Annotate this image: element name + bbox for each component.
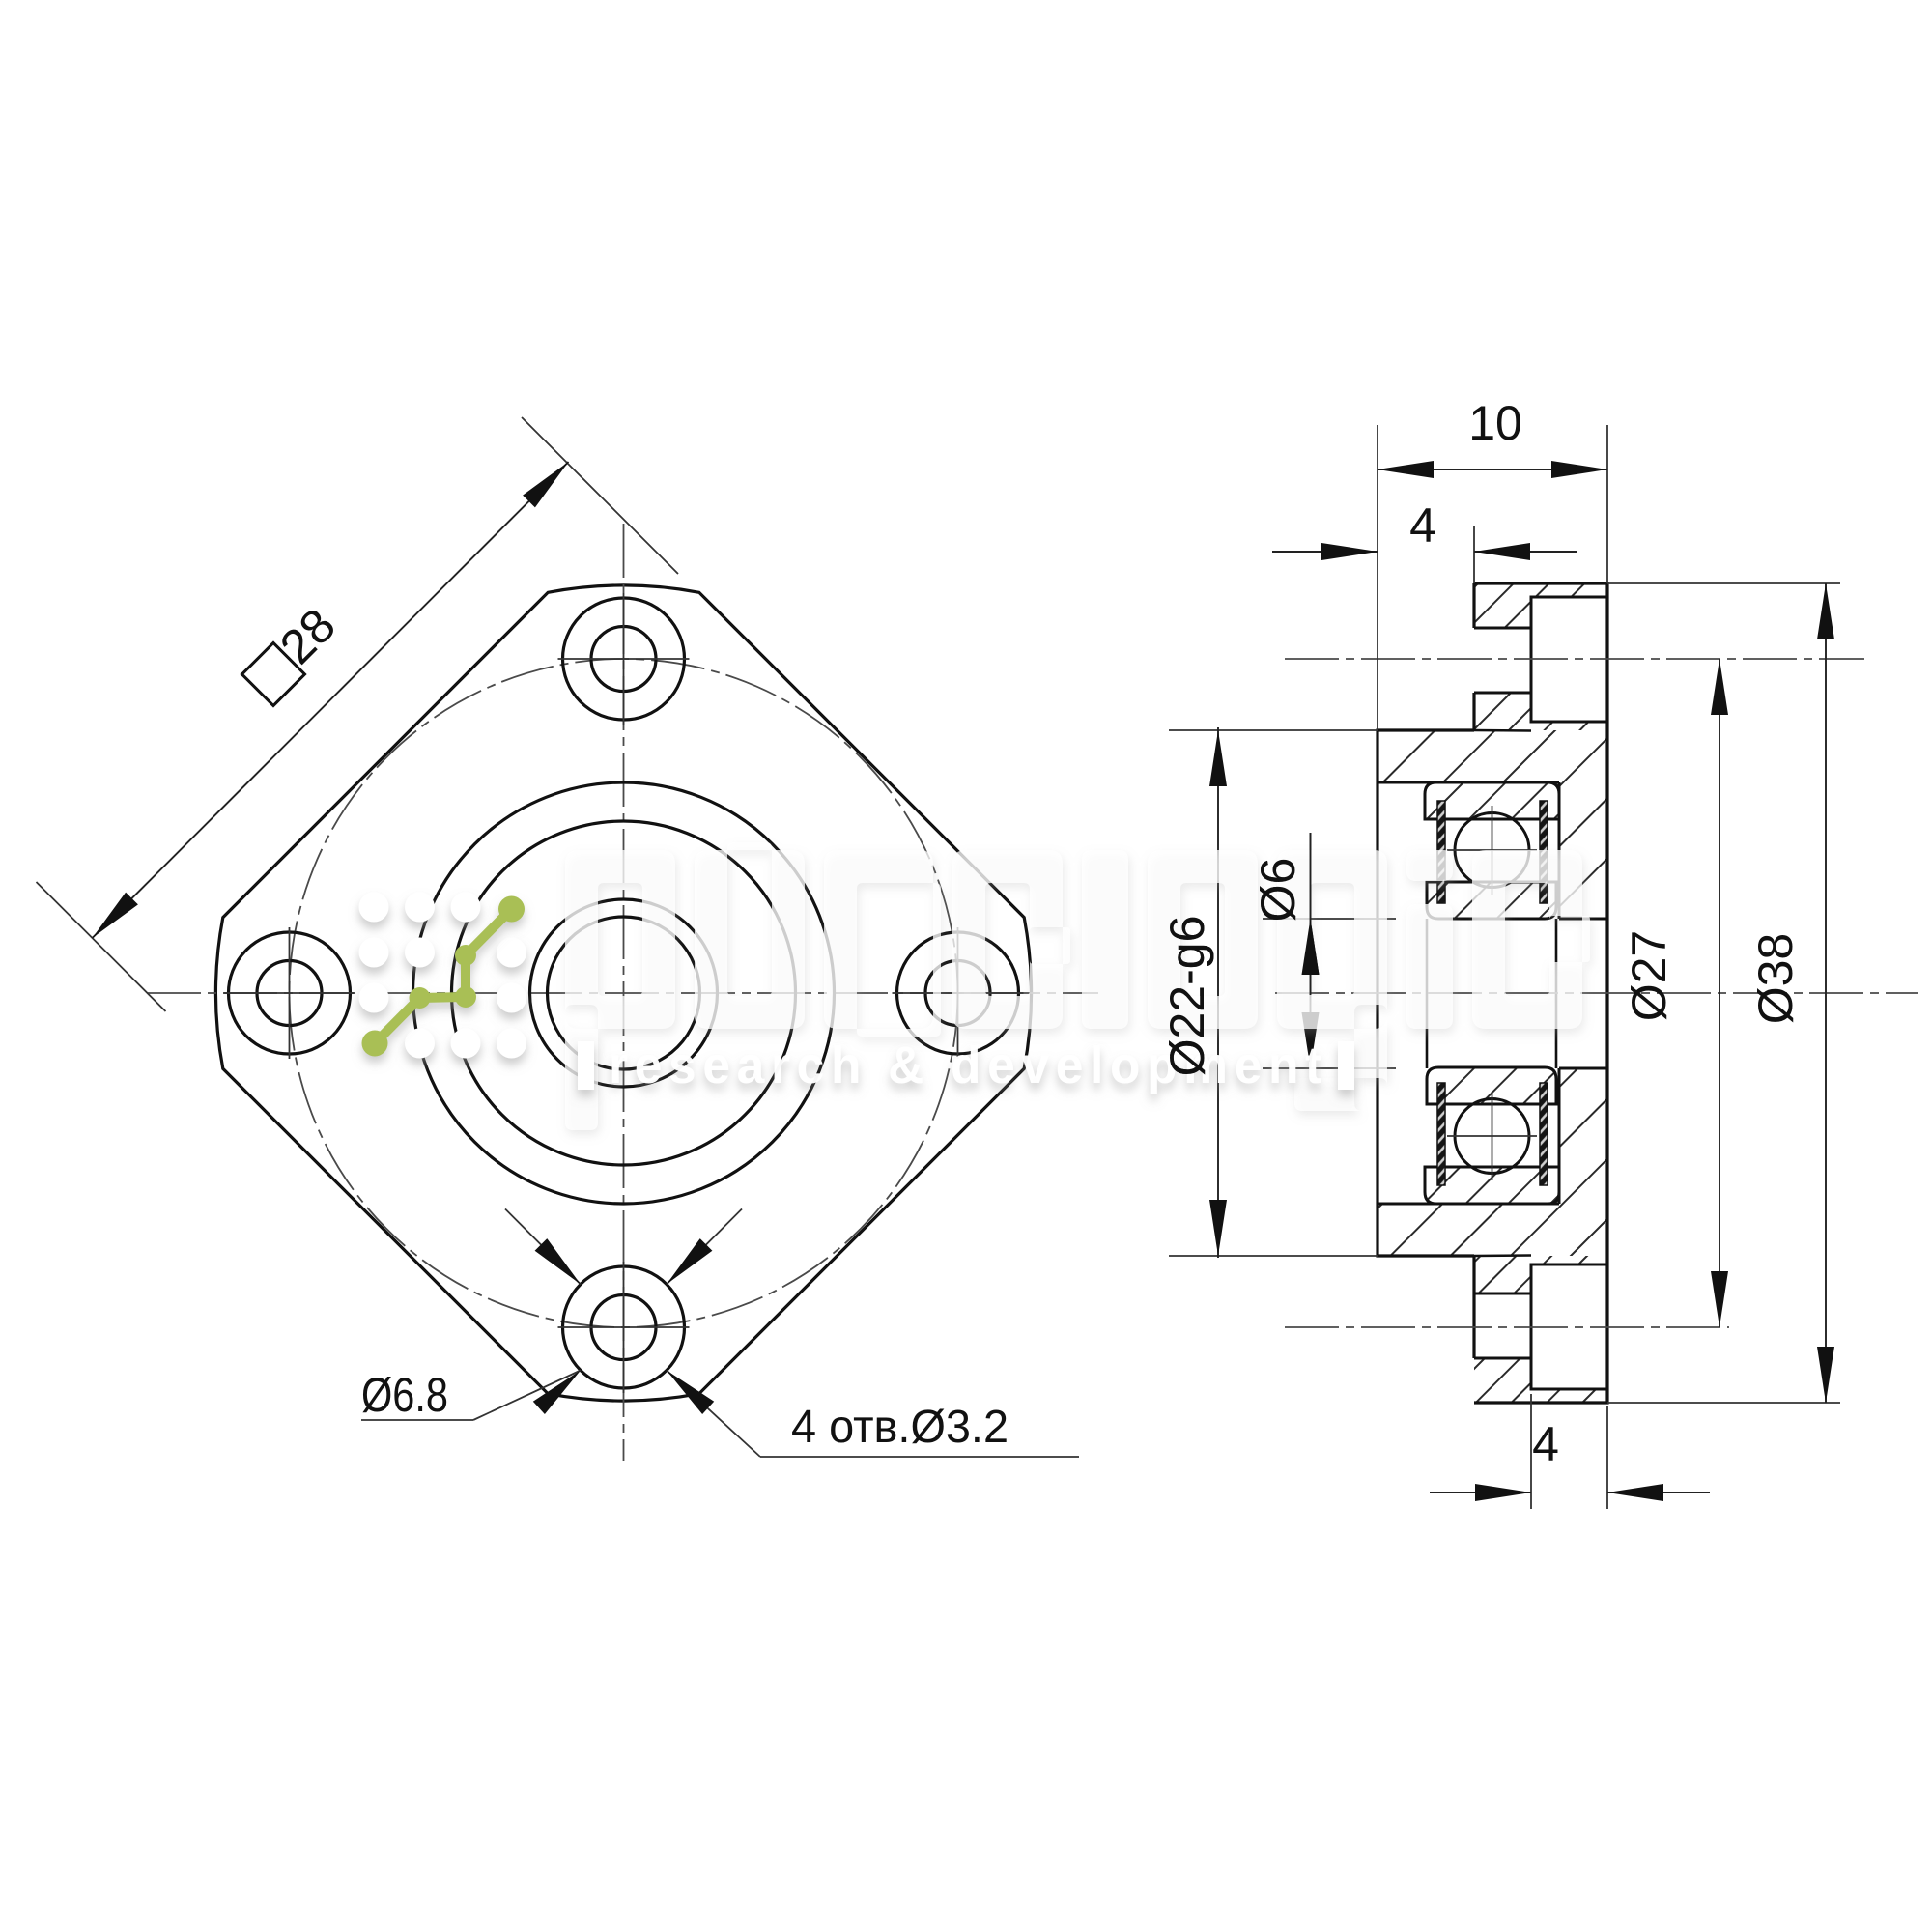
svg-text:4: 4 [1409,498,1436,553]
svg-text:28: 28 [270,598,346,674]
svg-text:Ø6: Ø6 [1251,858,1305,923]
svg-text:4 отв.Ø3.2: 4 отв.Ø3.2 [791,1402,1009,1453]
svg-text:Ø27: Ø27 [1622,930,1676,1022]
svg-text:Ø38: Ø38 [1748,933,1803,1025]
svg-text:4: 4 [1532,1417,1559,1471]
svg-text:10: 10 [1468,396,1522,450]
svg-text:Ø6.8: Ø6.8 [361,1368,448,1422]
svg-text:research & development: research & development [609,1037,1328,1094]
svg-text:Ø22-g6: Ø22-g6 [1160,916,1214,1077]
